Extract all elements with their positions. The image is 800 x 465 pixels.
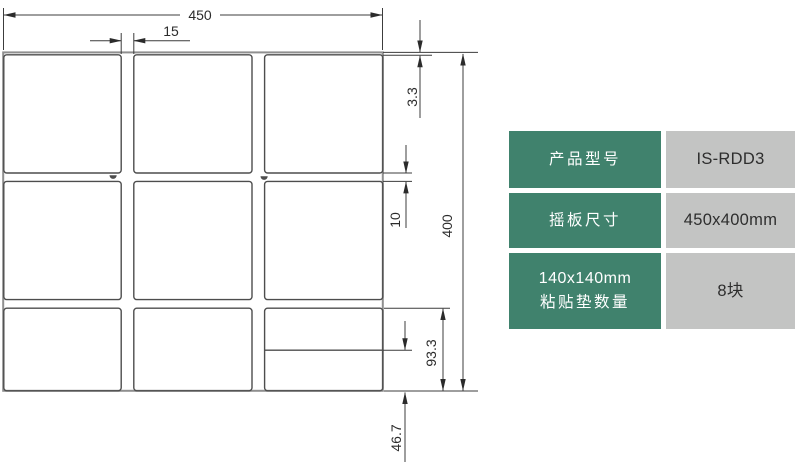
spec-table: 产品型号 IS-RDD3 摇板尺寸 450x400mm 140x140mm 粘贴… — [509, 131, 795, 329]
spec-label-text-line1: 140x140mm — [539, 267, 632, 291]
spec-value-text: 450x400mm — [684, 208, 778, 233]
spec-label-plate-size: 摇板尺寸 — [509, 193, 661, 248]
spec-label-product-model: 产品型号 — [509, 131, 661, 188]
adhesive-pad — [134, 55, 252, 173]
adhesive-pad — [265, 55, 383, 173]
spec-value-pad-count: 8块 — [666, 253, 795, 329]
spec-label-text: 摇板尺寸 — [549, 209, 621, 232]
corner-mark — [261, 176, 268, 180]
adhesive-pad-cut — [4, 308, 121, 391]
dim-label-bottom-cut: 46.7 — [388, 424, 404, 451]
spec-value-text: IS-RDD3 — [696, 147, 764, 172]
spec-value-product-model: IS-RDD3 — [666, 131, 795, 188]
corner-mark — [110, 175, 117, 179]
dimension-drawing: 450 15 3.3 10 400 93.3 46.7 — [0, 0, 500, 465]
dim-label-top-margin: 3.3 — [404, 87, 420, 107]
dim-label-width-total: 450 — [188, 7, 212, 23]
spec-label-pad-count: 140x140mm 粘贴垫数量 — [509, 253, 661, 329]
spec-label-text-line2: 粘贴垫数量 — [540, 291, 630, 314]
adhesive-pad — [265, 181, 383, 299]
spec-value-plate-size: 450x400mm — [666, 193, 795, 248]
dim-label-pad-gap: 15 — [163, 23, 179, 39]
spec-label-text: 产品型号 — [549, 148, 621, 171]
adhesive-pad-cut — [265, 308, 383, 391]
panel-outline — [3, 52, 383, 390]
adhesive-pad — [4, 181, 121, 299]
adhesive-pad-cut — [134, 308, 252, 391]
dim-label-row-gap: 10 — [387, 212, 403, 228]
product-spec-sheet: 450 15 3.3 10 400 93.3 46.7 产品型号 IS-RDD3… — [0, 0, 800, 465]
adhesive-pad — [4, 55, 121, 173]
dim-label-height-total: 400 — [439, 214, 455, 238]
spec-value-text: 8块 — [717, 279, 743, 304]
adhesive-pad — [134, 181, 252, 299]
dim-label-bottom-visible: 93.3 — [423, 339, 439, 366]
